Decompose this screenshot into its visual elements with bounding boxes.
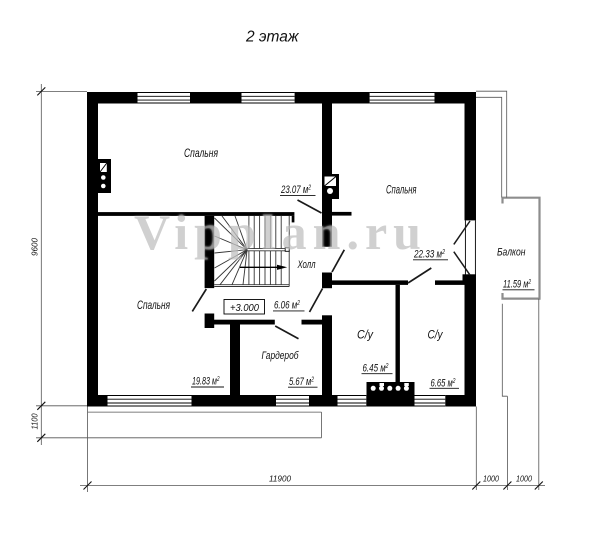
svg-text:Гардероб: Гардероб (262, 350, 300, 362)
svg-text:11.59 м2: 11.59 м2 (503, 279, 531, 291)
svg-text:С/у: С/у (428, 330, 444, 342)
svg-text:11900: 11900 (269, 474, 291, 484)
svg-text:6.65 м2: 6.65 м2 (431, 378, 456, 390)
svg-text:19.83 м2: 19.83 м2 (192, 376, 220, 388)
svg-text:5.67 м2: 5.67 м2 (289, 376, 314, 388)
svg-text:+3.000: +3.000 (230, 303, 259, 314)
svg-text:Балкон: Балкон (497, 247, 526, 259)
svg-text:2 этаж: 2 этаж (245, 29, 300, 46)
svg-text:1000: 1000 (483, 474, 499, 484)
svg-text:Спальня: Спальня (184, 146, 218, 160)
svg-text:Холл: Холл (297, 259, 316, 271)
svg-text:6.45 м2: 6.45 м2 (363, 363, 389, 375)
svg-text:9600: 9600 (30, 238, 40, 256)
svg-text:С/у: С/у (357, 330, 374, 342)
svg-text:1000: 1000 (516, 474, 532, 484)
svg-text:23.07 м2: 23.07 м2 (280, 184, 311, 196)
svg-text:Спальня: Спальня (137, 298, 170, 312)
svg-text:Спальня: Спальня (386, 183, 417, 197)
svg-text:1100: 1100 (30, 413, 40, 429)
svg-text:6.06 м2: 6.06 м2 (274, 300, 300, 312)
